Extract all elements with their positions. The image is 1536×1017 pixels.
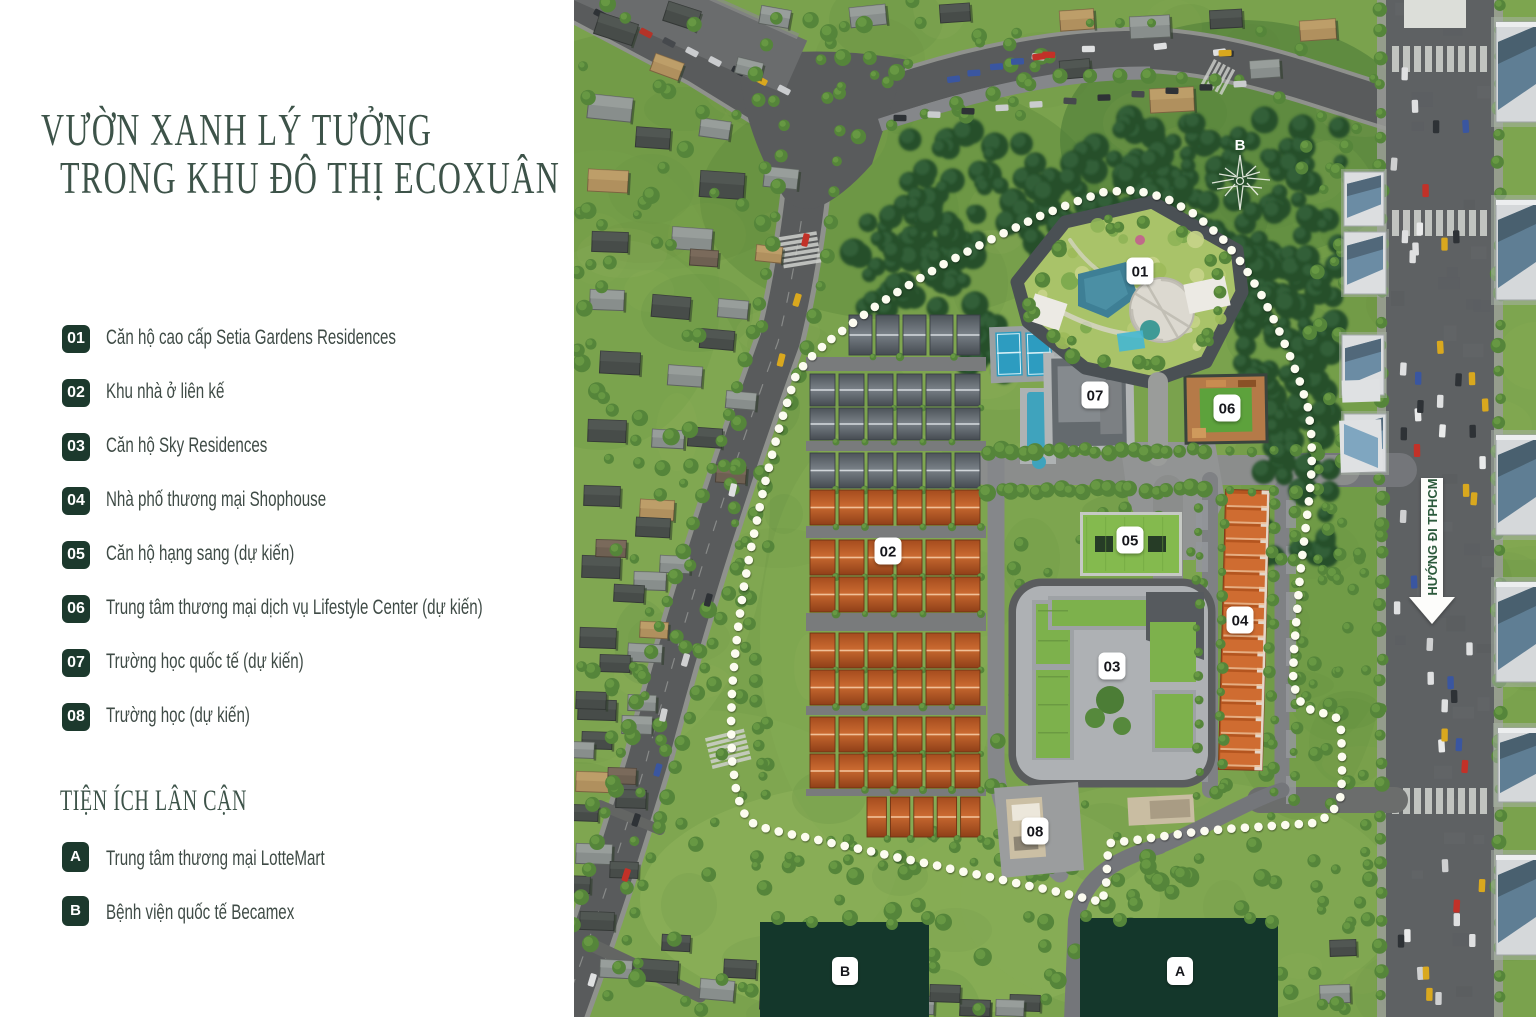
svg-text:04: 04 (1232, 612, 1249, 629)
svg-text:06: 06 (1219, 400, 1236, 417)
svg-text:HƯỚNG ĐI TPHCM: HƯỚNG ĐI TPHCM (1425, 478, 1440, 595)
svg-text:03: 03 (1104, 658, 1121, 675)
svg-text:A: A (1175, 963, 1185, 979)
svg-text:07: 07 (1087, 387, 1104, 404)
svg-text:02: 02 (880, 543, 897, 560)
svg-text:01: 01 (1132, 263, 1149, 280)
svg-text:05: 05 (1122, 532, 1139, 549)
svg-text:B: B (1235, 137, 1246, 154)
svg-text:B: B (840, 963, 850, 979)
svg-text:08: 08 (1027, 823, 1044, 840)
